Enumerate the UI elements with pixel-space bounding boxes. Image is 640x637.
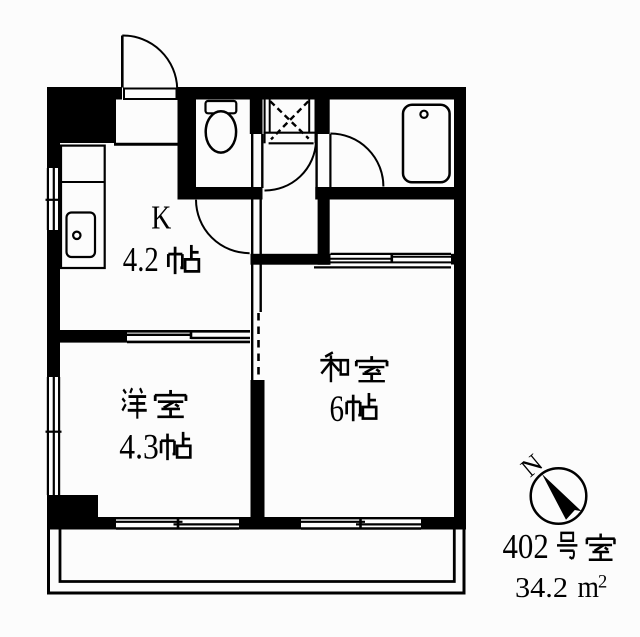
svg-text:2: 2 <box>598 573 607 593</box>
svg-text:6: 6 <box>330 389 345 430</box>
svg-text:4.2: 4.2 <box>123 240 159 279</box>
svg-text:402: 402 <box>503 527 549 566</box>
svg-text:m: m <box>578 569 600 604</box>
svg-text:4.3: 4.3 <box>119 427 159 467</box>
svg-text:K: K <box>151 199 171 236</box>
svg-text:34.2: 34.2 <box>515 572 568 604</box>
